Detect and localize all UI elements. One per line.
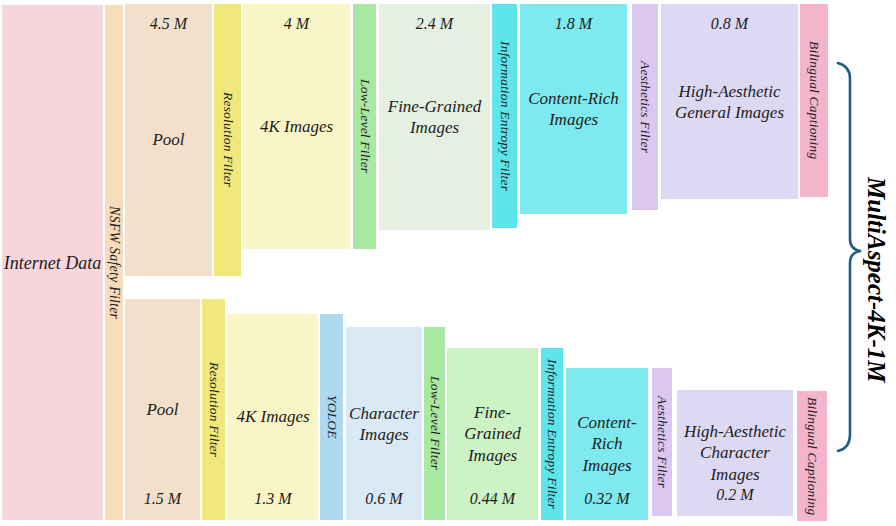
- top-bilingual-captioning-label: Bilingual Captioning: [806, 41, 822, 159]
- dataset-title-label: MultiAspect-4K-1M: [862, 177, 890, 383]
- character-images-block: Character Images 0.6 M: [346, 327, 422, 520]
- bottom-pool-label: Pool: [126, 399, 200, 420]
- top-low-level-filter-label: Low-Level Filter: [357, 79, 373, 173]
- top-content-rich-images-block: 1.8 M Content-Rich Images: [520, 4, 627, 214]
- top-fine-grained-images-block: 2.4 M Fine-Grained Images: [379, 4, 490, 230]
- top-information-entropy-filter-label: Information Entropy Filter: [497, 41, 513, 191]
- top-resolution-filter-block: Resolution Filter: [214, 4, 241, 276]
- top-aesthetics-filter-label: Aesthetics Filter: [637, 61, 653, 153]
- top-high-aesthetic-general-images-count: 0.8 M: [661, 15, 798, 33]
- bottom-resolution-filter-label: Resolution Filter: [206, 362, 222, 457]
- top-information-entropy-filter-block: Information Entropy Filter: [492, 4, 517, 228]
- bottom-bilingual-captioning-label: Bilingual Captioning: [804, 397, 820, 515]
- top-content-rich-images-label: Content-Rich Images: [521, 88, 626, 131]
- top-resolution-filter-label: Resolution Filter: [220, 92, 236, 187]
- nsfw-safety-filter-label: NSFW Safety Filter: [106, 206, 122, 319]
- dataset-title: MultiAspect-4K-1M: [856, 30, 896, 526]
- top-aesthetics-filter-block: Aesthetics Filter: [632, 4, 658, 210]
- top-fine-grained-images-count: 2.4 M: [379, 15, 490, 33]
- bottom-aesthetics-filter-block: Aesthetics Filter: [652, 368, 672, 516]
- bottom-fine-grained-images-label: Fine-Grained Images: [448, 402, 537, 466]
- bottom-4k-images-label: 4K Images: [229, 406, 317, 427]
- bottom-low-level-filter-label: Low-Level Filter: [427, 376, 443, 470]
- bottom-content-rich-images-block: Content- Rich Images 0.32 M: [566, 368, 648, 520]
- bottom-fine-grained-images-count: 0.44 M: [447, 490, 538, 508]
- bottom-low-level-filter-block: Low-Level Filter: [424, 327, 445, 520]
- bottom-pool-block: Pool 1.5 M: [125, 299, 200, 520]
- character-images-count: 0.6 M: [346, 490, 422, 508]
- top-pool-count: 4.5 M: [125, 15, 212, 33]
- bottom-aesthetics-filter-label: Aesthetics Filter: [654, 396, 670, 488]
- bottom-content-rich-images-count: 0.32 M: [566, 490, 648, 508]
- top-high-aesthetic-general-images-block: 0.8 M High-Aesthetic General Images: [661, 4, 798, 199]
- top-fine-grained-images-label: Fine-Grained Images: [380, 96, 489, 139]
- bottom-4k-images-block: 4K Images 1.3 M: [228, 314, 318, 520]
- character-images-label: Character Images: [347, 402, 421, 445]
- bottom-pool-count: 1.5 M: [125, 490, 200, 508]
- internet-data-block: Internet Data: [2, 5, 103, 520]
- yoloe-filter-block: YOLOE: [320, 314, 343, 520]
- bottom-high-aesthetic-character-images-count: 0.2 M: [677, 486, 793, 504]
- top-pool-block: 4.5 M Pool: [125, 4, 212, 276]
- top-bilingual-captioning-block: Bilingual Captioning: [800, 4, 828, 197]
- top-4k-images-block: 4 M 4K Images: [243, 4, 350, 249]
- top-content-rich-images-count: 1.8 M: [520, 15, 627, 33]
- bottom-high-aesthetic-character-images-block: High-Aesthetic Character Images 0.2 M: [677, 390, 793, 516]
- top-low-level-filter-block: Low-Level Filter: [353, 4, 376, 249]
- bottom-4k-images-count: 1.3 M: [228, 490, 318, 508]
- nsfw-safety-filter-block: NSFW Safety Filter: [105, 5, 123, 520]
- top-pool-label: Pool: [126, 129, 211, 150]
- bottom-content-rich-images-label: Content- Rich Images: [567, 412, 647, 476]
- bottom-fine-grained-images-block: Fine-Grained Images 0.44 M: [447, 348, 538, 520]
- top-high-aesthetic-general-images-label: High-Aesthetic General Images: [662, 80, 796, 123]
- bottom-bilingual-captioning-block: Bilingual Captioning: [797, 391, 827, 521]
- bottom-high-aesthetic-character-images-label: High-Aesthetic Character Images: [678, 421, 792, 485]
- top-4k-images-label: 4K Images: [244, 116, 349, 137]
- yoloe-filter-label: YOLOE: [324, 395, 340, 439]
- internet-data-label: Internet Data: [2, 252, 103, 273]
- bottom-resolution-filter-block: Resolution Filter: [202, 299, 225, 520]
- pipeline-diagram: Internet Data NSFW Safety Filter 4.5 M P…: [0, 0, 896, 526]
- bottom-information-entropy-filter-label: Information Entropy Filter: [544, 359, 560, 509]
- bottom-information-entropy-filter-block: Information Entropy Filter: [541, 348, 563, 520]
- top-4k-images-count: 4 M: [243, 15, 350, 33]
